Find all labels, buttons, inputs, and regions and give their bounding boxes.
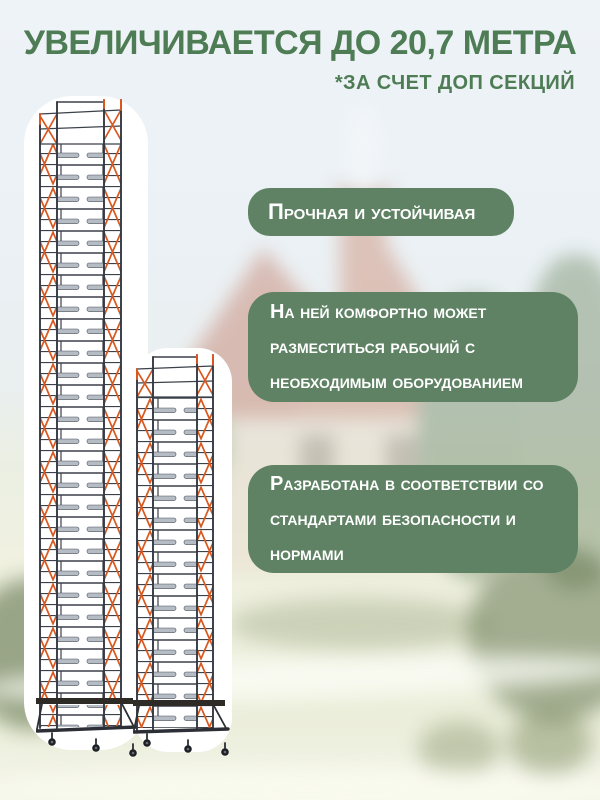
grass-tuft — [508, 712, 592, 774]
feature-badge-label: На ней комфортно может разместиться рабо… — [270, 295, 556, 400]
feature-badge-label: Прочная и устойчивая — [268, 199, 475, 225]
promo-poster: УВЕЛИЧИВАЕТСЯ ДО 20,7 МЕТРА *ЗА СЧЕТ ДОП… — [0, 0, 600, 800]
grass-tuft — [418, 722, 500, 774]
feature-badge-durable: Прочная и устойчивая — [248, 188, 514, 236]
page-subtitle: *ЗА СЧЕТ ДОП СЕКЦИЙ — [335, 72, 575, 95]
chimney-smoke — [344, 106, 382, 198]
feature-badge-label: Разработана в соответствии со стандартам… — [270, 467, 556, 572]
tall-scaffold-tower-illustration — [36, 98, 140, 758]
field-bottom-highlight — [0, 768, 600, 800]
feature-badge-standards: Разработана в соответствии со стандартам… — [248, 465, 578, 573]
page-title: УВЕЛИЧИВАЕТСЯ ДО 20,7 МЕТРА — [0, 24, 600, 63]
field-shade-band — [228, 598, 493, 650]
short-scaffold-tower-illustration — [133, 353, 233, 757]
feature-badge-comfort: На ней комфортно может разместиться рабо… — [248, 292, 578, 402]
